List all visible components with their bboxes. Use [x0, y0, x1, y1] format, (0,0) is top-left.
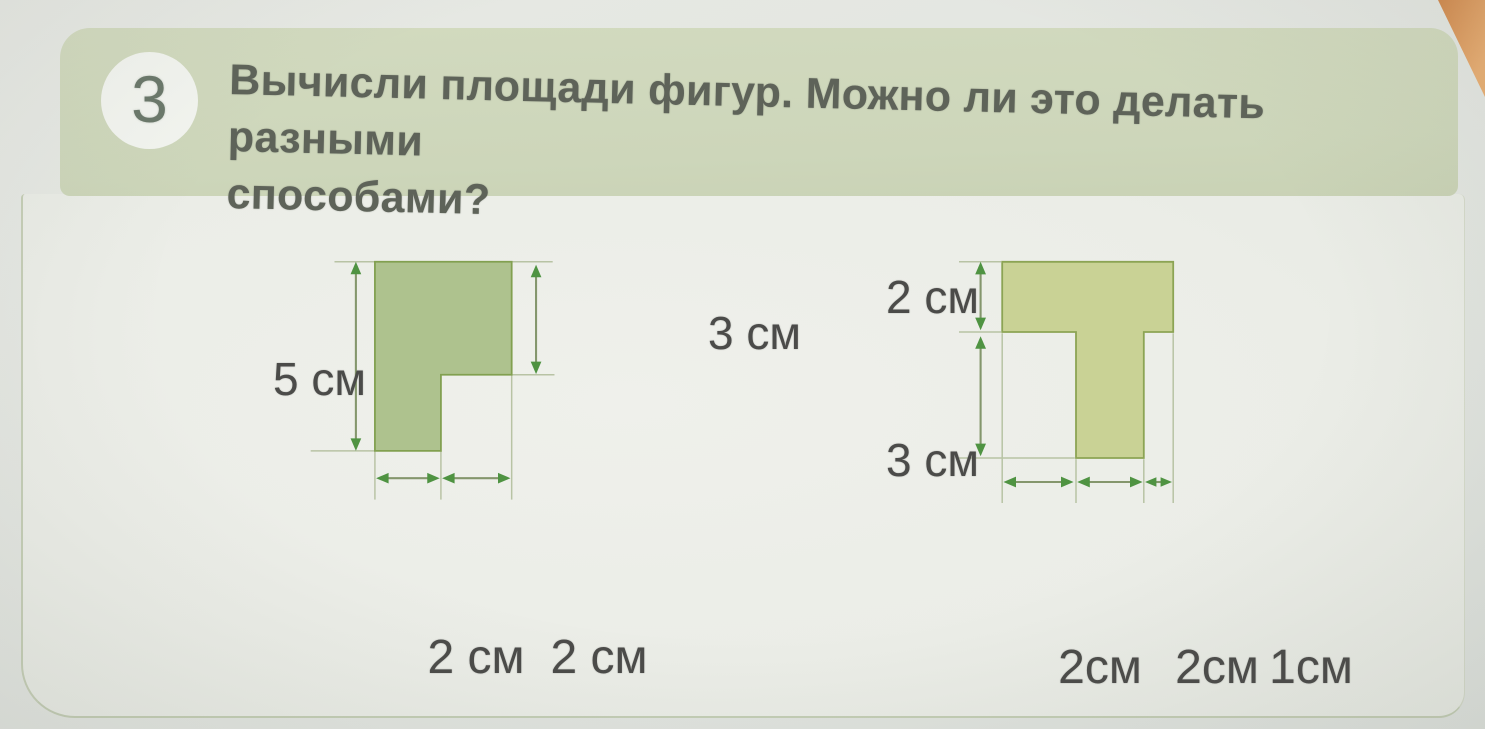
figure-left-bottom-label-1: 2 см [413, 630, 539, 685]
figure-left-right-height-arrow [531, 265, 542, 374]
arrow-head-down [351, 438, 362, 450]
arrow-head-left [1145, 477, 1156, 487]
arrow-head-left [442, 473, 454, 484]
figure-left-bottom-arrow-1 [376, 473, 440, 484]
arrow-head-up [351, 262, 362, 274]
figure-left-right-height-label: 3 см [708, 306, 801, 360]
figure-right-bottom-arrow-2 [1077, 477, 1142, 488]
figure-right-top-height-label: 2 см [843, 270, 979, 324]
figure-right-bottom-arrow-3 [1145, 477, 1172, 487]
arrow-head-right [427, 473, 439, 484]
task-number-badge: 3 [101, 52, 198, 149]
arrow-head-left [376, 473, 388, 484]
arrow-head-down [531, 362, 542, 374]
figure-left-height-label: 5 см [240, 352, 366, 406]
arrow-head-right [1061, 477, 1074, 488]
arrow-head-right [498, 473, 510, 484]
t-shape-polygon [1002, 262, 1173, 458]
figure-right-t-shape [950, 220, 1340, 690]
figure-right-bottom-label-1: 2см [1038, 640, 1162, 695]
figure-right-bottom-arrow-1 [1003, 477, 1073, 488]
textbook-page-photo: 3 Вычисли площади фигур. Можно ли это де… [0, 0, 1485, 729]
figure-right-bottom-label-3: 1см [1252, 640, 1370, 695]
figure-left-l-shape [300, 220, 740, 690]
task-number: 3 [131, 61, 168, 137]
arrow-head-right [1130, 477, 1143, 488]
figure-left-bottom-label-2: 2 см [536, 630, 662, 685]
figure-left-bottom-arrow-2 [442, 473, 510, 484]
arrow-head-right [1161, 477, 1172, 487]
figure-right-stem-height-label: 3 см [843, 433, 979, 487]
arrow-head-up [531, 265, 542, 277]
arrow-head-up [975, 336, 986, 349]
arrow-head-left [1003, 477, 1016, 488]
l-shape-polygon [375, 262, 512, 451]
arrow-head-left [1077, 477, 1090, 488]
task-header-band: 3 Вычисли площади фигур. Можно ли это де… [60, 28, 1458, 196]
